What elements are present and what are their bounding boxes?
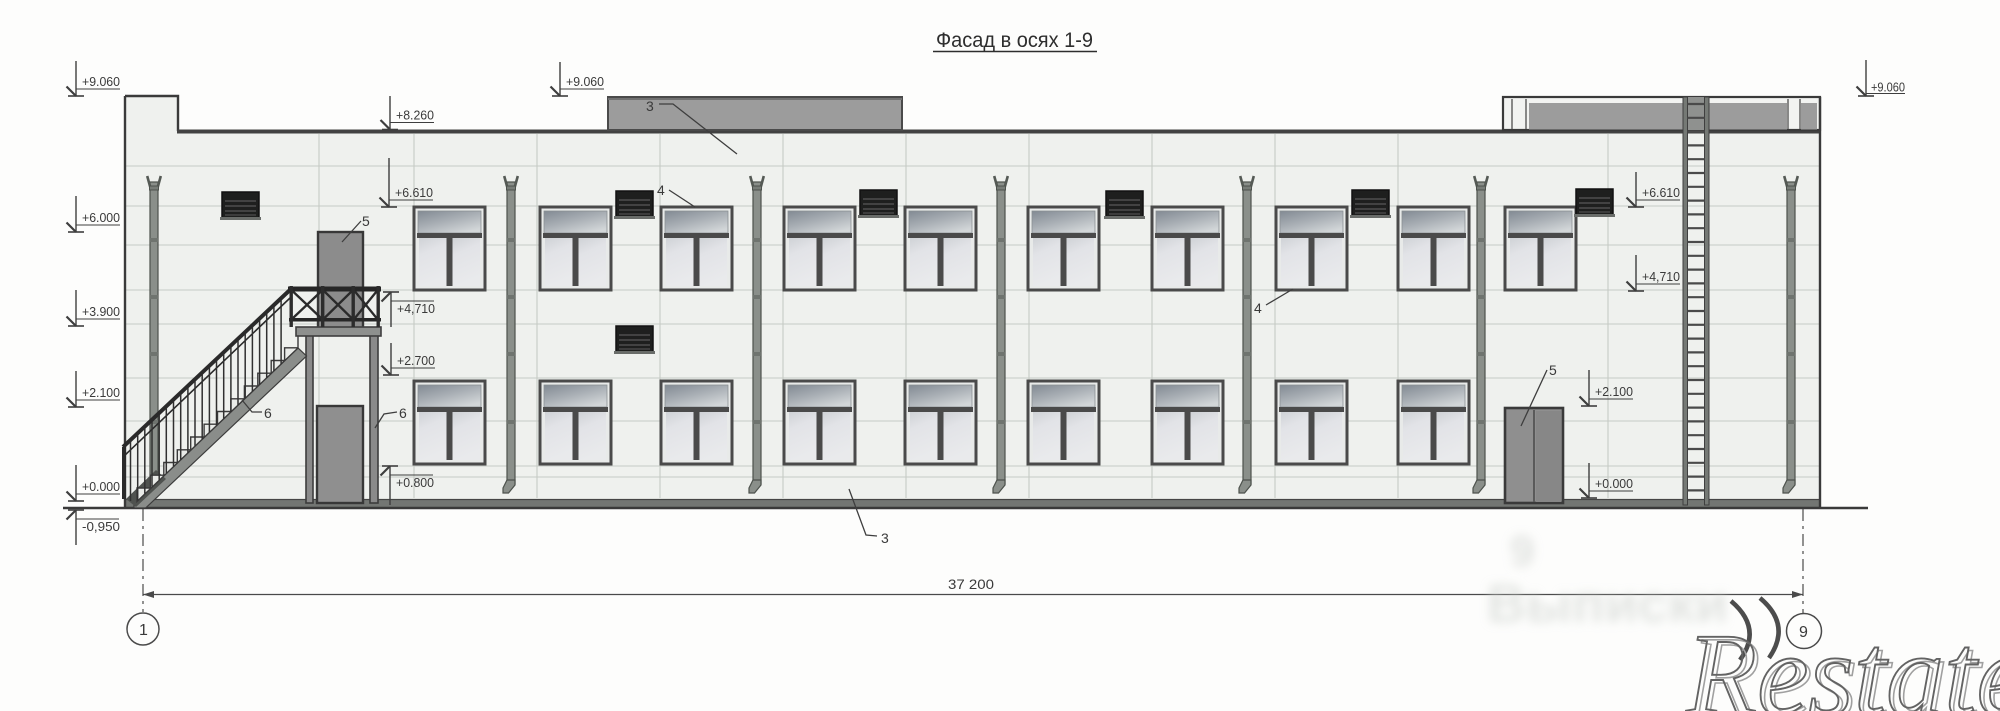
svg-text:+9.060: +9.060 (1871, 80, 1905, 95)
svg-text:5: 5 (1549, 362, 1557, 378)
svg-text:+4,710: +4,710 (1642, 269, 1680, 284)
svg-text:+8.260: +8.260 (396, 108, 434, 123)
svg-text:Restate: Restate (1685, 609, 2000, 711)
svg-text:-0,950: -0,950 (82, 519, 120, 534)
svg-text:9: 9 (1510, 527, 1534, 576)
svg-text:Фасад в осях 1-9: Фасад в осях 1-9 (936, 29, 1093, 52)
svg-text:5: 5 (362, 213, 370, 229)
svg-text:+9.060: +9.060 (566, 74, 604, 89)
svg-text:+2.100: +2.100 (1595, 384, 1633, 399)
svg-text:6: 6 (399, 405, 407, 421)
svg-text:1: 1 (139, 622, 148, 639)
svg-text:+2.100: +2.100 (82, 385, 120, 400)
svg-text:+6.610: +6.610 (395, 185, 433, 200)
svg-text:+6.000: +6.000 (82, 210, 120, 225)
svg-text:+0.000: +0.000 (1595, 476, 1633, 491)
svg-text:+0.000: +0.000 (82, 479, 120, 494)
svg-text:+2.700: +2.700 (397, 353, 435, 368)
svg-text:4: 4 (657, 182, 665, 198)
svg-text:+4,710: +4,710 (397, 301, 435, 316)
svg-text:+3.900: +3.900 (82, 304, 120, 319)
svg-text:3: 3 (881, 530, 889, 546)
svg-text:6: 6 (264, 405, 272, 421)
svg-text:+9.060: +9.060 (82, 74, 120, 89)
svg-text:+6.610: +6.610 (1642, 185, 1680, 200)
svg-text:37 200: 37 200 (948, 577, 994, 592)
svg-text:4: 4 (1254, 300, 1262, 316)
svg-text:+0.800: +0.800 (396, 475, 434, 490)
svg-text:3: 3 (646, 98, 654, 114)
